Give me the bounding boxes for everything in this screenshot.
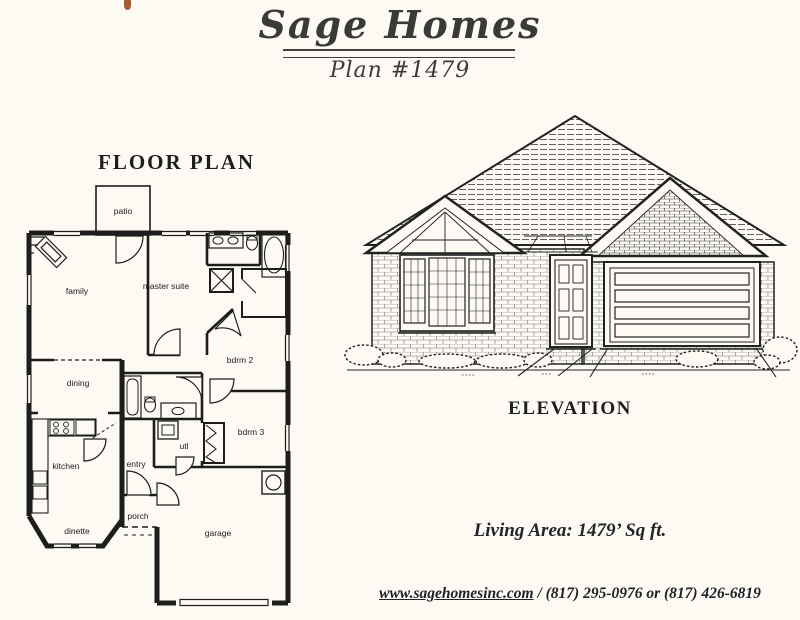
room-label-kitchen: kitchen (53, 461, 80, 471)
elevation-heading: ELEVATION (345, 398, 795, 420)
room-label-family: family (66, 286, 89, 296)
living-area-text: Living Area: 1479’ Sq ft. (345, 520, 795, 542)
room-label-utl: utl (180, 441, 189, 451)
elevation-drawing (342, 112, 798, 380)
room-label-bdrm3: bdrm 3 (238, 427, 265, 437)
room-label-entry: entry (127, 459, 147, 469)
company-title: Sage Homes (0, 2, 800, 47)
floor-plan-heading: FLOOR PLAN (98, 150, 255, 175)
room-label-patio: patio (114, 206, 133, 216)
scanned-flyer-page: Sage Homes Plan #1479 FLOOR PLAN (0, 0, 800, 620)
room-label-bdrm2: bdrm 2 (227, 355, 254, 365)
room-label-garage: garage (205, 528, 232, 538)
plan-number: Plan #1479 (0, 58, 800, 83)
title-underline (283, 49, 515, 58)
website-url: www.sagehomesinc.com (379, 585, 533, 602)
room-label-dining: dining (67, 378, 90, 388)
room-label-porch: porch (127, 511, 149, 521)
contact-footer: www.sagehomesinc.com / (817) 295-0976 or… (340, 585, 800, 603)
phone-numbers: / (817) 295-0976 or (817) 426-6819 (534, 585, 761, 602)
room-label-master-suite: master suite (143, 281, 190, 291)
floor-plan-drawing: patio family master suite dining bdrm 2 … (24, 183, 296, 620)
room-label-dinette: dinette (64, 526, 90, 536)
